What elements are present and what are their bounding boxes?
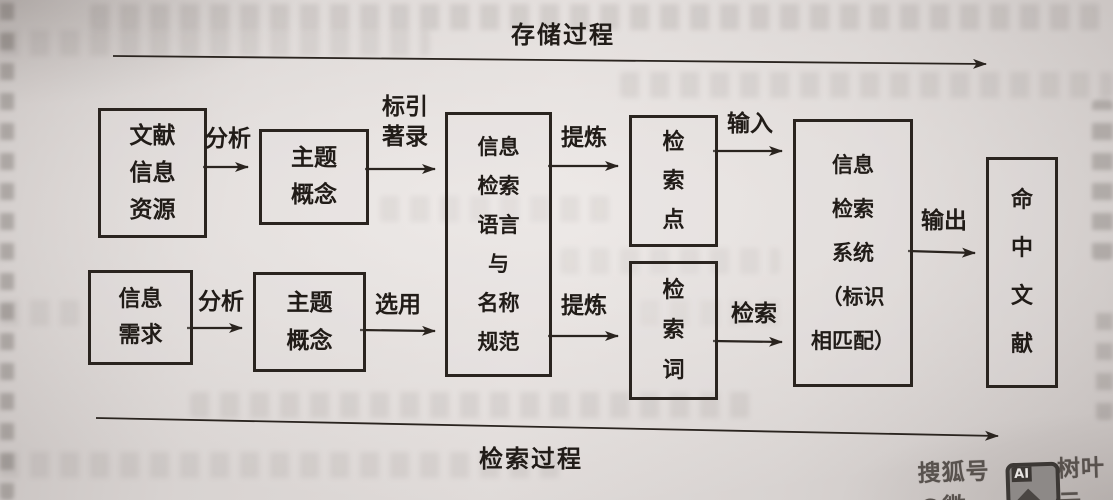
edge-label-output: 输出 (916, 206, 972, 236)
box-retrieval-term: 检 索 词 (629, 261, 718, 400)
edge-label-search: 检索 (726, 299, 782, 329)
box-retrieval-language: 信息 检索 语言 与 名称 规范 (445, 112, 552, 377)
edge-label-indexing: 标引 著录 (372, 92, 438, 153)
sohu-watermark: 搜狐号@微 AI 树叶云 (917, 448, 1113, 500)
storage-process-label: 存储过程 (498, 20, 628, 52)
ai-image-badge-icon: AI (1005, 462, 1060, 500)
edge-label-select: 选用 (370, 290, 426, 320)
edge-label-analyze-top: 分析 (201, 124, 255, 154)
storage-process-arrow (113, 56, 986, 64)
edge-label-analyze-bottom: 分析 (194, 287, 248, 317)
edge-label-input: 输入 (723, 109, 777, 139)
box-retrieval-system: 信息 检索 系统 （标识 相匹配） (793, 119, 913, 387)
box-subject-concept-top: 主题 概念 (259, 129, 369, 225)
arrow-term-to-system (713, 341, 782, 342)
watermark-prefix: 搜狐号@微 (917, 451, 1012, 500)
box-retrieval-point: 检 索 点 (629, 115, 718, 247)
flow-arrows (0, 0, 1113, 500)
retrieval-process-arrow (96, 418, 998, 436)
box-info-need: 信息 需求 (88, 270, 193, 365)
edge-label-refine-bottom: 提炼 (557, 291, 611, 321)
arrow-system-to-hits (908, 251, 975, 253)
box-subject-concept-bottom: 主题 概念 (253, 272, 366, 372)
arrow-concept-to-language-2 (360, 330, 435, 331)
watermark-suffix: 树叶云 (1056, 448, 1113, 500)
box-document-info-resources: 文献 信息 资源 (98, 108, 207, 238)
picture-mountain-icon (1012, 488, 1044, 500)
ai-badge-label: AI (1011, 466, 1032, 482)
retrieval-process-label: 检索过程 (466, 444, 596, 476)
box-hit-documents: 命 中 文 献 (986, 157, 1058, 388)
book-page-photo: 存储过程 检索过程 文献 信息 资源 主题 概念 信息 检索 语言 与 名称 规… (0, 0, 1113, 500)
edge-label-refine-top: 提炼 (557, 123, 611, 153)
